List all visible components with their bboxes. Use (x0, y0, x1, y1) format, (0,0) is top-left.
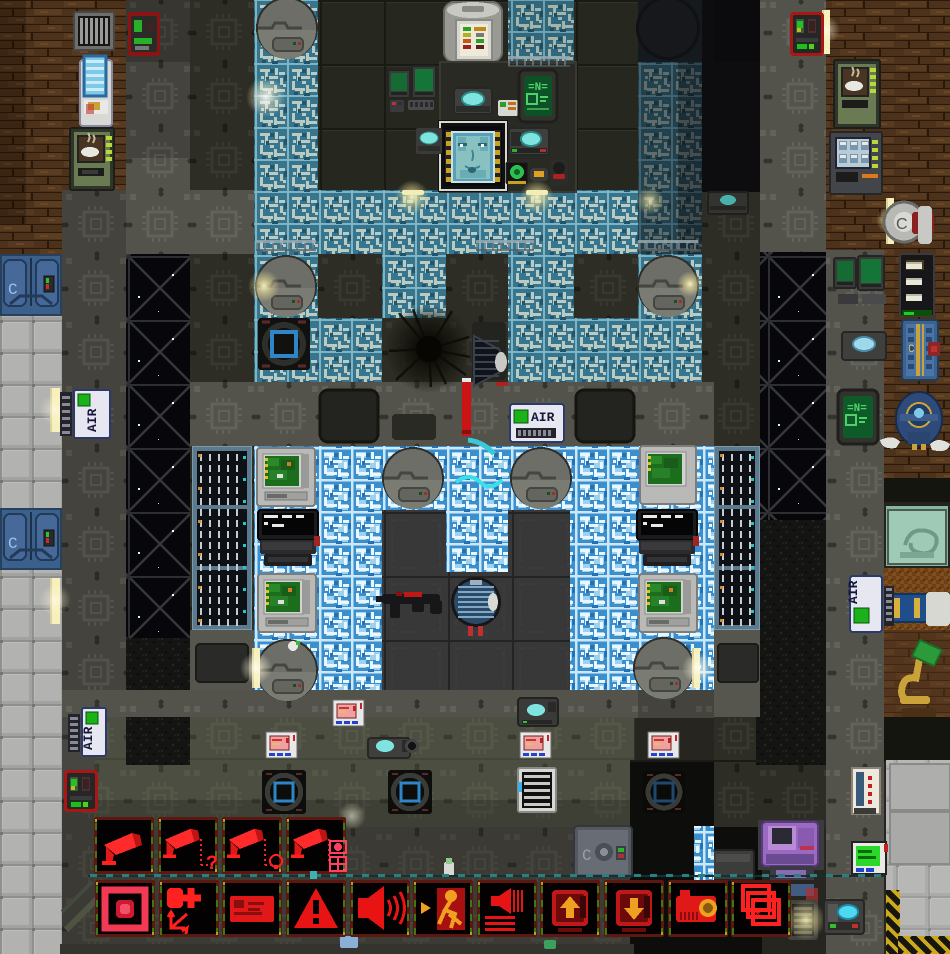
svg-text:=N=: =N= (528, 82, 548, 94)
svg-text:AIR: AIR (531, 410, 555, 425)
svg-text:AIR: AIR (81, 726, 96, 750)
svg-text:=N=: =N= (847, 403, 867, 415)
svg-text:*: * (755, 907, 761, 923)
svg-text:C: C (896, 216, 908, 233)
svg-text:C: C (908, 344, 915, 356)
svg-text:C: C (582, 847, 592, 865)
svg-text:AIR: AIR (85, 408, 100, 432)
svg-text:C: C (8, 535, 18, 553)
svg-text:AIR: AIR (846, 580, 861, 604)
svg-text:?: ? (206, 853, 218, 876)
svg-text:C: C (8, 281, 18, 299)
